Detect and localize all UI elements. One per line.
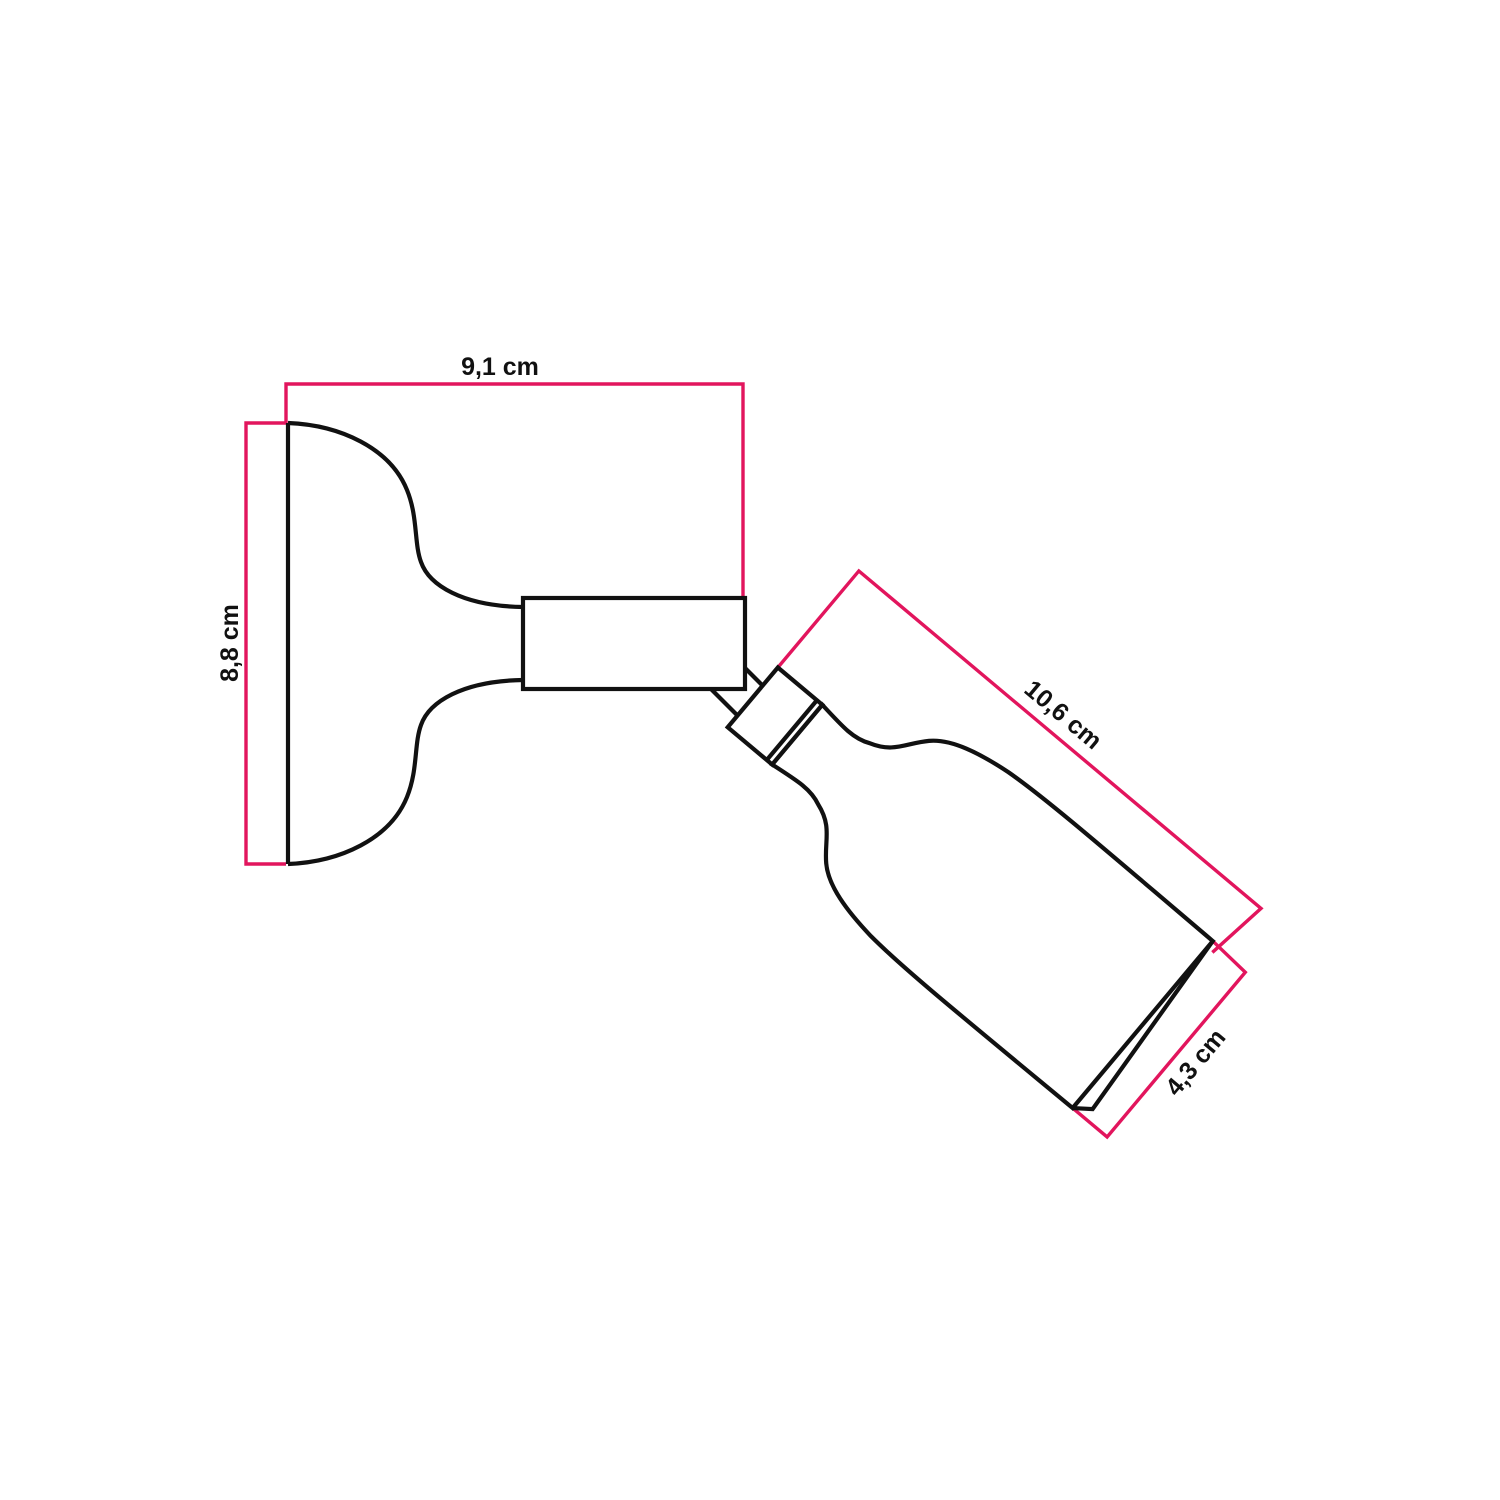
- diagram-svg: 10,6 cm 4,3 cm 9,1 cm 8,8 cm: [0, 0, 1500, 1500]
- dimension-line-base-width: [286, 384, 743, 597]
- dimension-label-base-width: 9,1 cm: [461, 353, 539, 381]
- base-trumpet-top-curve: [288, 423, 523, 607]
- dimension-line-base-height: [246, 423, 286, 864]
- base-trumpet-bottom-curve: [288, 680, 523, 864]
- dimension-label-base-height: 8,8 cm: [216, 604, 244, 682]
- wall-base-drawing: [288, 423, 792, 864]
- dimension-diagram: 10,6 cm 4,3 cm 9,1 cm 8,8 cm: [0, 0, 1500, 1500]
- mount-cylinder: [523, 598, 745, 689]
- spotlight-group: 10,6 cm 4,3 cm: [682, 544, 1332, 1159]
- spotlight-drawing: [682, 613, 1225, 1119]
